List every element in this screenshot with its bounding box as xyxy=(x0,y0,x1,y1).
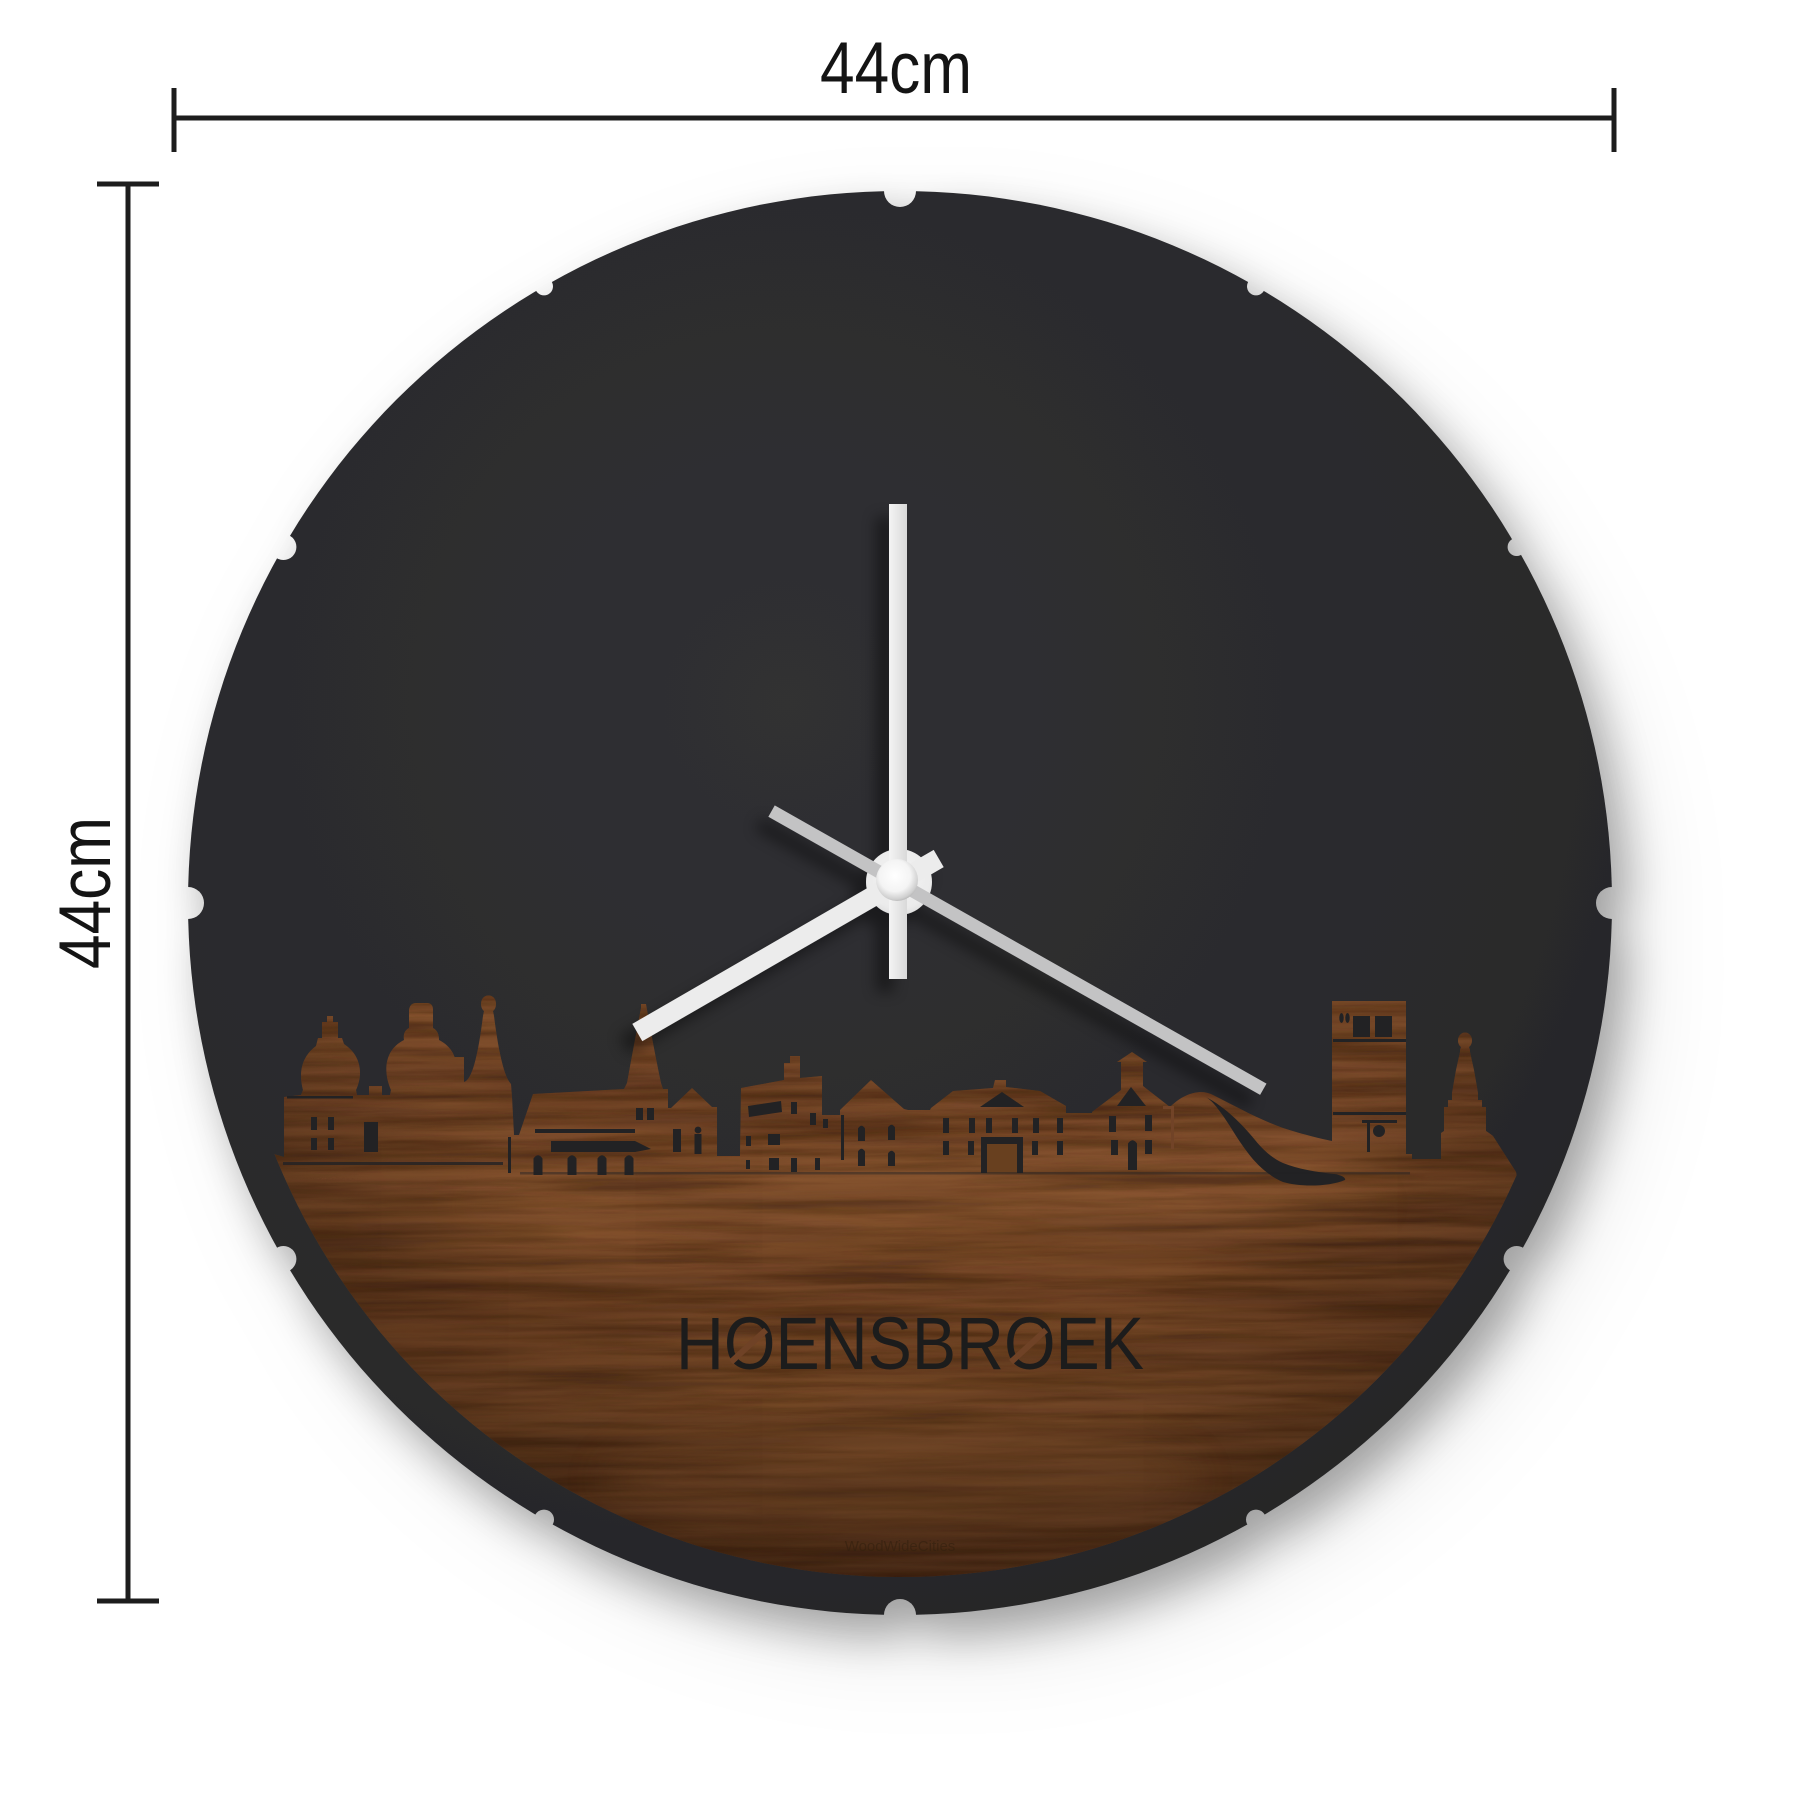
svg-text:WoodWideCities: WoodWideCities xyxy=(845,1538,956,1555)
svg-text:44cm: 44cm xyxy=(820,28,972,109)
svg-text:44cm: 44cm xyxy=(45,817,126,969)
svg-text:HOENSBROEK: HOENSBROEK xyxy=(676,1302,1144,1385)
